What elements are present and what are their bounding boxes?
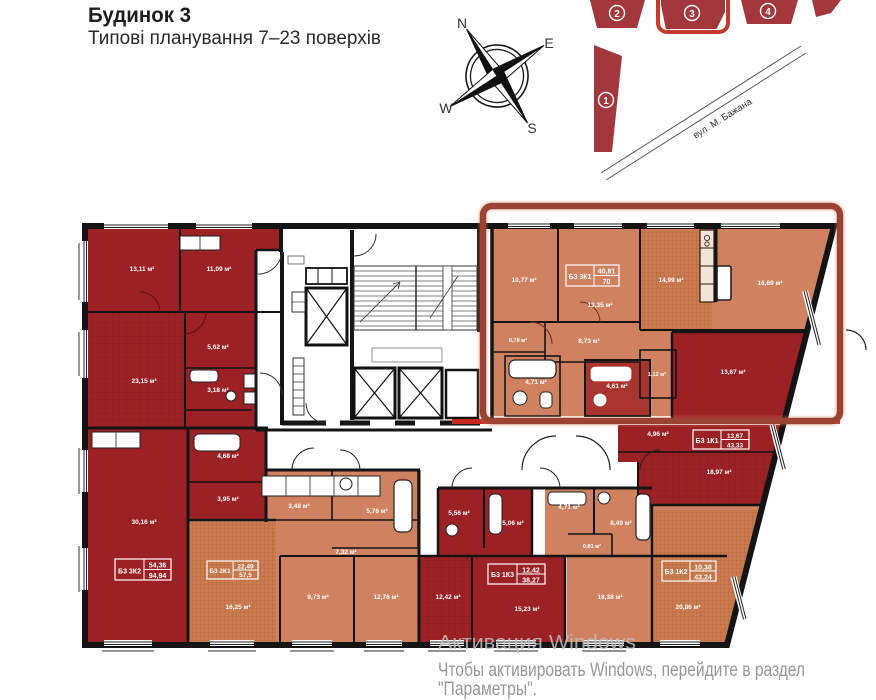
svg-text:5,76 м²: 5,76 м² <box>366 508 388 515</box>
svg-text:5,62 м²: 5,62 м² <box>207 344 229 351</box>
svg-text:70: 70 <box>603 279 611 286</box>
svg-text:Б3 1К1: Б3 1К1 <box>696 438 719 445</box>
svg-text:22,49: 22,49 <box>237 564 254 571</box>
svg-text:Б3 1К3: Б3 1К3 <box>491 572 514 579</box>
svg-text:3,48 м²: 3,48 м² <box>288 503 310 510</box>
svg-text:23,15 м²: 23,15 м² <box>131 378 157 385</box>
svg-text:8,49 м²: 8,49 м² <box>610 520 632 527</box>
svg-text:N: N <box>457 15 467 31</box>
svg-text:4,71 м²: 4,71 м² <box>558 504 580 511</box>
svg-text:1: 1 <box>603 96 609 107</box>
svg-text:4,71 м²: 4,71 м² <box>525 379 547 386</box>
svg-text:14,99 м²: 14,99 м² <box>658 277 684 284</box>
svg-text:38,27: 38,27 <box>522 578 540 585</box>
svg-text:7,32 м²: 7,32 м² <box>335 549 357 556</box>
svg-text:Чтобы активировать Windows, пе: Чтобы активировать Windows, перейдите в … <box>438 660 805 681</box>
svg-text:94,94: 94,94 <box>149 573 167 580</box>
svg-text:Б3 3К2: Б3 3К2 <box>118 569 141 576</box>
svg-text:9,73 м²: 9,73 м² <box>307 594 329 601</box>
svg-text:16,69 м²: 16,69 м² <box>757 280 783 287</box>
svg-text:43,24: 43,24 <box>694 575 712 582</box>
svg-text:10,38: 10,38 <box>694 565 712 572</box>
svg-text:0,78 м²: 0,78 м² <box>509 337 527 344</box>
svg-text:W: W <box>439 100 453 116</box>
svg-text:3: 3 <box>689 9 695 20</box>
svg-text:13,67 м²: 13,67 м² <box>720 369 746 376</box>
svg-text:16,25 м²: 16,25 м² <box>225 604 251 611</box>
svg-text:0,81 м²: 0,81 м² <box>583 543 601 550</box>
svg-text:4,68 м²: 4,68 м² <box>217 453 239 460</box>
svg-text:Б3 1К2: Б3 1К2 <box>665 569 688 576</box>
svg-text:2: 2 <box>614 9 620 20</box>
svg-text:57,5: 57,5 <box>239 572 252 579</box>
svg-text:5,56 м²: 5,56 м² <box>448 510 470 517</box>
svg-text:13,67: 13,67 <box>727 433 744 440</box>
svg-text:Б3 2К1: Б3 2К1 <box>209 568 231 575</box>
svg-text:S: S <box>527 120 536 136</box>
svg-text:5,06 м²: 5,06 м² <box>502 520 524 527</box>
svg-text:15,23 м²: 15,23 м² <box>514 606 540 613</box>
svg-text:8,73 м²: 8,73 м² <box>578 338 600 345</box>
svg-text:Б3 3К1: Б3 3К1 <box>569 274 592 281</box>
svg-text:43,33: 43,33 <box>727 443 744 450</box>
svg-text:4,96 м²: 4,96 м² <box>647 431 669 438</box>
svg-text:13,35 м²: 13,35 м² <box>587 302 613 309</box>
svg-text:12,42: 12,42 <box>522 568 540 575</box>
svg-text:E: E <box>544 35 553 51</box>
svg-text:11,09 м²: 11,09 м² <box>207 266 233 273</box>
svg-text:12,42 м²: 12,42 м² <box>435 594 461 601</box>
svg-text:13,11 м²: 13,11 м² <box>130 266 156 273</box>
svg-text:18,38 м²: 18,38 м² <box>597 594 623 601</box>
svg-text:Будинок 3: Будинок 3 <box>88 4 191 27</box>
svg-text:12,76 м²: 12,76 м² <box>373 594 399 601</box>
svg-text:Активация Windows: Активация Windows <box>438 631 636 654</box>
svg-text:4,61 м²: 4,61 м² <box>606 383 628 390</box>
svg-text:"Параметры".: "Параметры". <box>438 679 537 700</box>
svg-text:Типові планування 7–23 поверхі: Типові планування 7–23 поверхів <box>88 28 381 49</box>
svg-text:40,81: 40,81 <box>598 269 616 276</box>
svg-text:30,16 м²: 30,16 м² <box>131 519 157 526</box>
svg-text:3,18 м²: 3,18 м² <box>207 387 229 394</box>
svg-text:18,97 м²: 18,97 м² <box>706 469 732 476</box>
svg-text:20,86 м²: 20,86 м² <box>675 604 701 611</box>
svg-text:10,77 м²: 10,77 м² <box>511 277 537 284</box>
svg-text:1,12 м²: 1,12 м² <box>648 371 666 378</box>
svg-text:4: 4 <box>765 7 771 18</box>
svg-text:54,36: 54,36 <box>149 563 167 570</box>
svg-text:3,95 м²: 3,95 м² <box>217 496 239 503</box>
